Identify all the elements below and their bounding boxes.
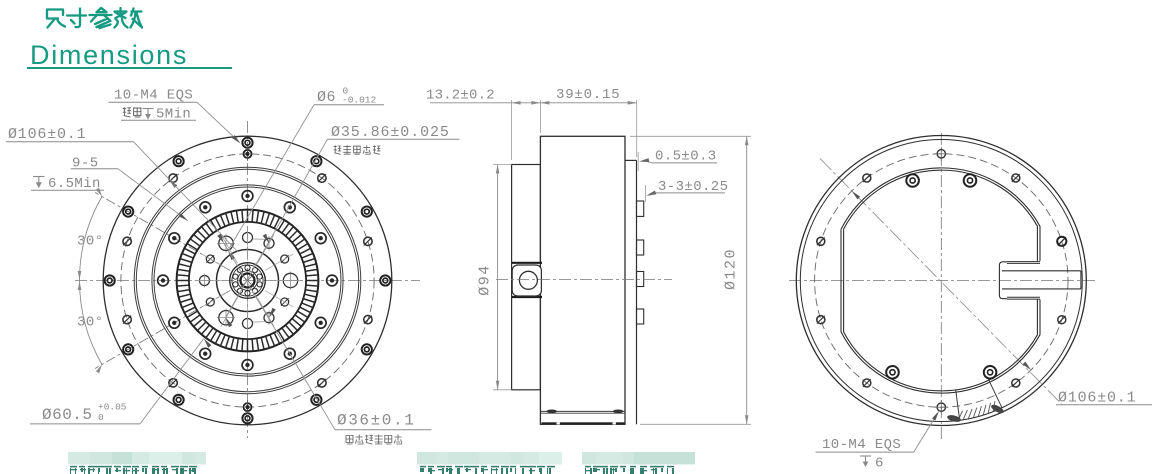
svg-text:Ø106±0.1: Ø106±0.1 [8,126,86,143]
svg-text:6: 6 [875,456,883,472]
svg-text:30°: 30° [77,234,104,250]
svg-text:Ø35.86±0.025: Ø35.86±0.025 [331,124,450,141]
svg-text:13.2±0.2: 13.2±0.2 [426,88,495,104]
svg-text:Ø60.5: Ø60.5 [42,406,93,424]
svg-text:0: 0 [98,412,104,423]
svg-text:+0.05: +0.05 [98,402,127,413]
svg-text:Ø36±0.1: Ø36±0.1 [337,412,415,430]
svg-text:30°: 30° [77,315,104,331]
svg-text:-0.012: -0.012 [342,95,377,106]
svg-text:6.5Min: 6.5Min [48,176,101,192]
svg-text:10-M4 EQS: 10-M4 EQS [822,437,901,453]
svg-text:Ø94: Ø94 [477,264,494,296]
svg-text:Ø6: Ø6 [317,89,336,106]
svg-text:Ø120: Ø120 [723,248,740,290]
svg-text:0.5±0.3: 0.5±0.3 [655,149,717,165]
svg-text:10-M4 EQS: 10-M4 EQS [114,88,193,104]
svg-text:39±0.15: 39±0.15 [556,87,620,103]
svg-text:Ø106±0.1: Ø106±0.1 [1058,390,1136,407]
